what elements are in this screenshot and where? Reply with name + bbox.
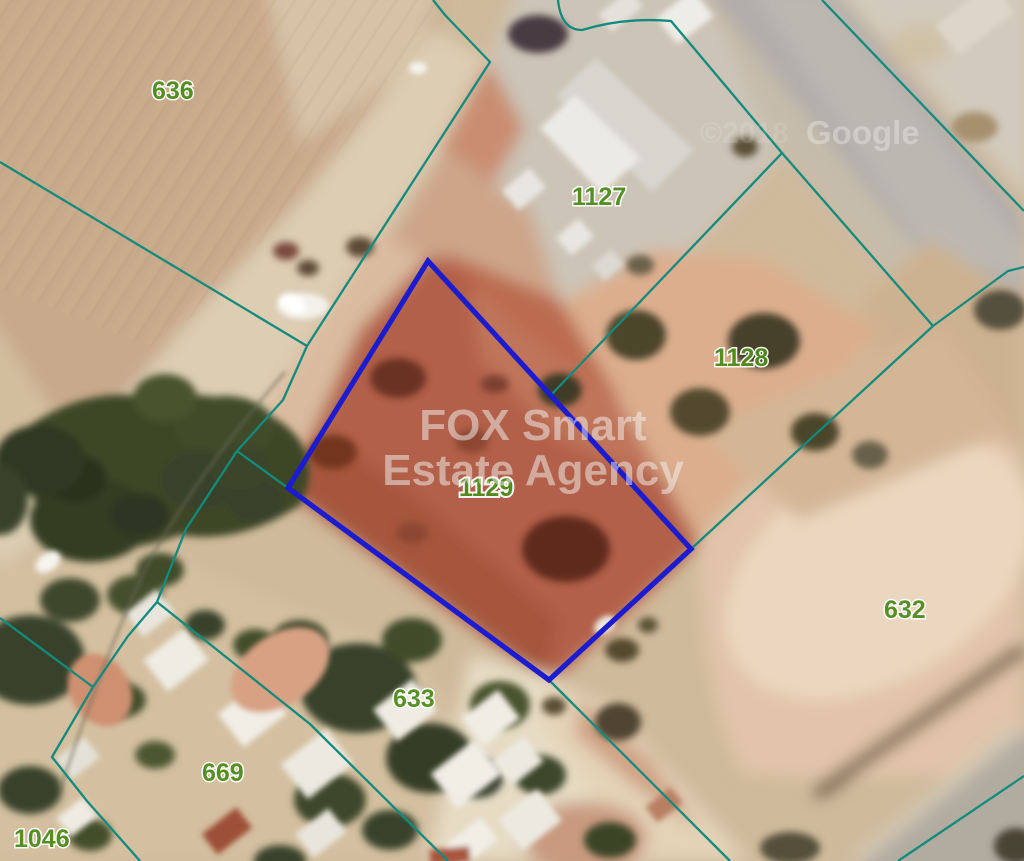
svg-text:Google: Google	[806, 114, 920, 151]
svg-text:Estate Agency: Estate Agency	[382, 446, 684, 495]
svg-text:636: 636	[152, 77, 194, 105]
svg-text:©2018: ©2018	[700, 117, 789, 150]
svg-text:669: 669	[202, 759, 244, 787]
svg-text:632: 632	[884, 596, 926, 624]
svg-text:1128: 1128	[714, 344, 768, 372]
svg-text:633: 633	[393, 685, 435, 713]
svg-text:1127: 1127	[572, 183, 626, 211]
svg-text:FOX Smart: FOX Smart	[419, 401, 647, 450]
svg-text:1046: 1046	[14, 825, 70, 853]
